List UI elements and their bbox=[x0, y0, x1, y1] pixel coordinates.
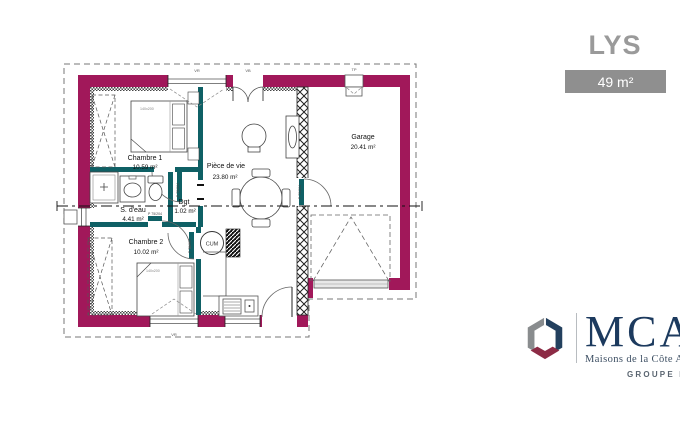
door-label-2: P 75/204 bbox=[148, 212, 162, 216]
room-label-sdeau: S. d'eau bbox=[120, 207, 146, 214]
brand-name: MCA bbox=[585, 311, 680, 353]
room-label-chambre2: Chambre 2 bbox=[129, 239, 164, 246]
brand-logo: MCA Maisons de la Côte Atlantique GROUPE… bbox=[522, 311, 680, 379]
water-heater-label: CUM bbox=[206, 242, 219, 248]
room-area-piece-de-vie: 23.80 m² bbox=[213, 174, 238, 181]
toilet-icon bbox=[148, 176, 163, 201]
wardrobe-chambre1 bbox=[92, 95, 115, 167]
sink-icon bbox=[120, 176, 145, 202]
window-label-vr-top: VR bbox=[194, 68, 200, 73]
room-label-garage: Garage bbox=[351, 134, 374, 141]
tall-cabinet bbox=[286, 116, 299, 158]
kitchen-counter bbox=[203, 252, 258, 316]
room-area-chambre2: 10.02 m² bbox=[134, 249, 159, 256]
brand-divider bbox=[576, 313, 577, 363]
entry-door bbox=[233, 87, 263, 102]
page: LYS 49 m² bbox=[0, 0, 680, 425]
garage-door bbox=[311, 215, 390, 288]
room-label-dgt: Dgt bbox=[179, 199, 190, 206]
brand-group: GROUPE HEXAOM bbox=[627, 370, 680, 379]
garden-door bbox=[262, 287, 292, 317]
bed-size-label-1: 140x200 bbox=[140, 107, 154, 111]
room-area-chambre1: 10.59 m² bbox=[133, 164, 158, 171]
side-table bbox=[242, 124, 266, 152]
window-label-entry: VB bbox=[245, 68, 251, 73]
brand-subtitle: Maisons de la Côte Atlantique bbox=[585, 354, 680, 365]
dining-table bbox=[232, 169, 290, 227]
door-threshold-ticks bbox=[197, 184, 204, 200]
room-area-sdeau: 4.41 m² bbox=[122, 216, 143, 223]
room-label-piece-de-vie: Pièce de vie bbox=[207, 163, 245, 170]
door-label-3: P 75/204 bbox=[188, 239, 192, 253]
window-label-garage: TP bbox=[351, 67, 356, 72]
nightstand bbox=[188, 148, 199, 160]
window-label-vr-bottom: VR bbox=[171, 332, 177, 337]
room-label-chambre1: Chambre 1 bbox=[128, 155, 163, 162]
window-bathroom bbox=[64, 208, 90, 226]
shower-icon bbox=[90, 172, 118, 203]
technical-shaft bbox=[226, 229, 240, 257]
room-area-dgt: 1.02 m² bbox=[174, 208, 195, 215]
door-label-1: P 75/204 bbox=[176, 183, 180, 197]
mca-cube-icon bbox=[522, 315, 568, 363]
window-garage bbox=[345, 75, 363, 96]
nightstand bbox=[188, 92, 199, 104]
door-label-4: P 75/204 bbox=[298, 185, 302, 199]
room-area-garage: 20.41 m² bbox=[351, 144, 376, 151]
bed-size-label-2: 140x200 bbox=[146, 269, 160, 273]
bed-chambre1 bbox=[131, 92, 199, 160]
